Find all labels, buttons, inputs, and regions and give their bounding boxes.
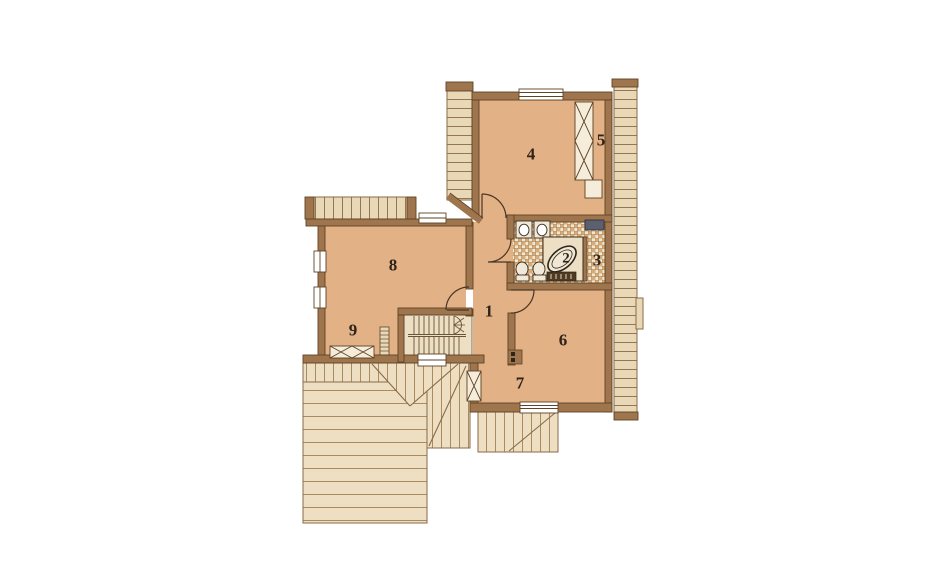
floor-plan-drawing <box>0 0 940 587</box>
wall-bracket-icon <box>508 350 522 364</box>
radiator-icon <box>547 272 576 281</box>
bathroom-cabinet-icon <box>585 220 604 230</box>
roof-lower-right <box>478 412 558 452</box>
toilet-icon <box>516 262 529 281</box>
room-label-5: 5 <box>597 132 606 149</box>
floor-plan-canvas: 1 2 3 4 5 6 7 8 9 <box>0 0 940 587</box>
room-label-6: 6 <box>559 332 568 349</box>
room-label-3: 3 <box>593 252 602 269</box>
x-window-room9 <box>330 346 374 358</box>
roof-lower-left <box>303 363 470 523</box>
stair-railing-icon <box>380 327 389 358</box>
room-label-1: 1 <box>485 303 494 320</box>
room-label-8: 8 <box>389 257 398 274</box>
room-label-2: 2 <box>562 252 570 267</box>
room-label-4: 4 <box>527 146 536 163</box>
x-window-hall <box>467 371 481 401</box>
room-label-7: 7 <box>516 375 525 392</box>
room-label-9: 9 <box>349 322 358 339</box>
bidet-icon <box>533 262 546 281</box>
staircase <box>404 315 472 357</box>
